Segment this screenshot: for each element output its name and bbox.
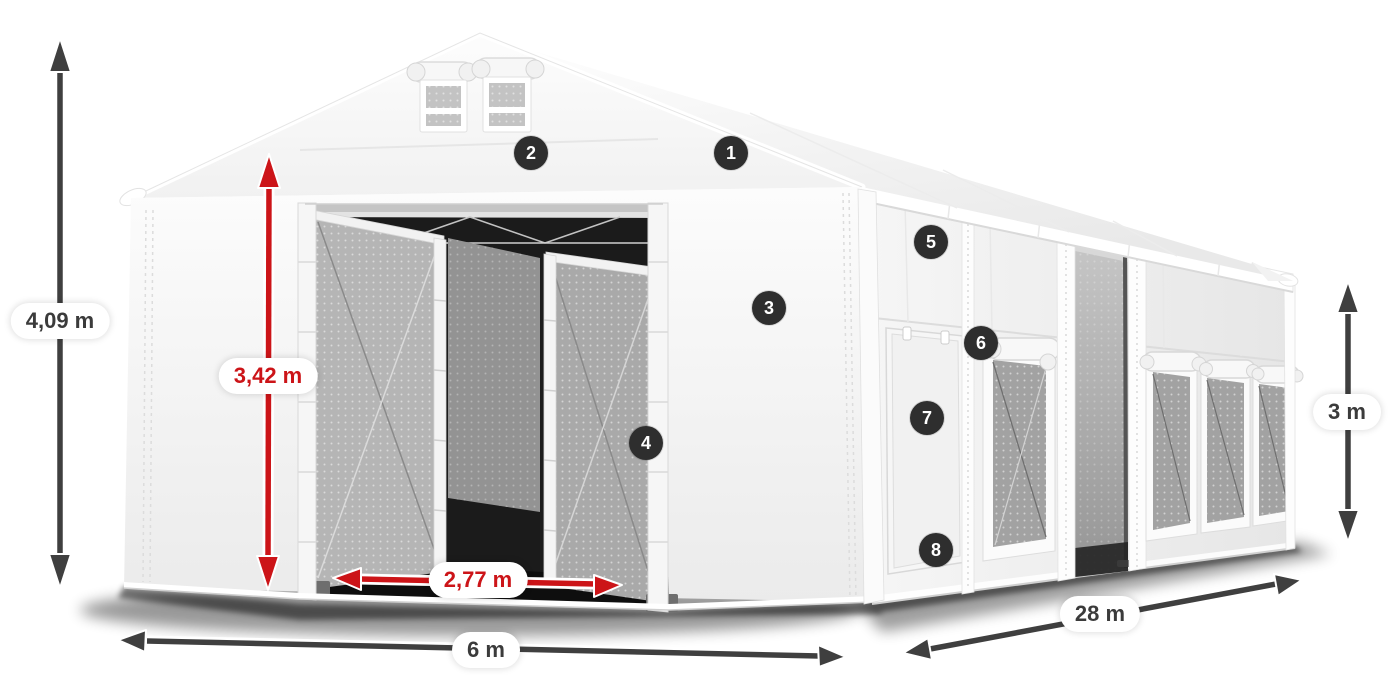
marker-3[interactable]: 3 bbox=[752, 291, 786, 325]
tent-dimension-diagram: 1 2 3 4 5 6 7 8 4,09 m 3,42 m 2,77 m 6 m… bbox=[0, 0, 1400, 700]
marker-1[interactable]: 1 bbox=[714, 136, 748, 170]
marker-6[interactable]: 6 bbox=[964, 326, 998, 360]
marker-8[interactable]: 8 bbox=[919, 533, 953, 567]
side-window-2 bbox=[1140, 352, 1206, 541]
marker-7[interactable]: 7 bbox=[910, 401, 944, 435]
dim-label-total-height: 4,09 m bbox=[13, 305, 108, 337]
dim-label-length: 28 m bbox=[1062, 598, 1138, 630]
dim-label-side-height: 3 m bbox=[1315, 396, 1379, 428]
marker-2[interactable]: 2 bbox=[514, 136, 548, 170]
dim-label-entrance-width: 2,77 m bbox=[431, 564, 526, 596]
entrance-opening bbox=[298, 203, 678, 612]
side-window-3 bbox=[1200, 360, 1260, 533]
side-opening bbox=[1057, 230, 1146, 581]
dim-label-entrance-height: 3,42 m bbox=[221, 360, 316, 392]
marker-4[interactable]: 4 bbox=[629, 426, 663, 460]
side-window-1 bbox=[983, 338, 1060, 561]
tent-illustration bbox=[0, 0, 1400, 700]
dim-label-width: 6 m bbox=[454, 634, 518, 666]
marker-5[interactable]: 5 bbox=[914, 225, 948, 259]
entrance-left-door-mesh bbox=[312, 210, 446, 589]
